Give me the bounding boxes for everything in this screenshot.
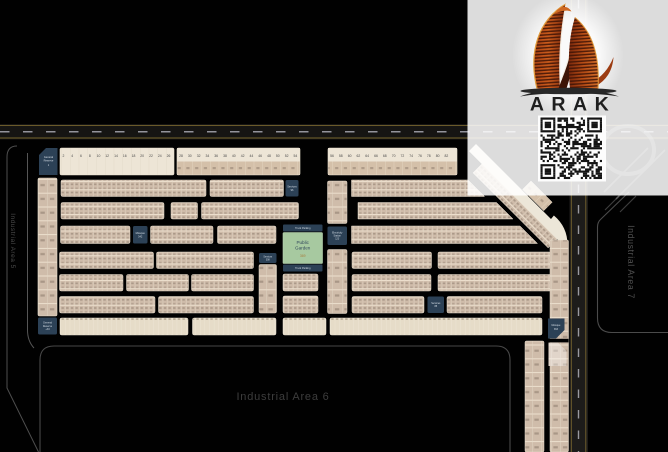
svg-text:123: 123: [335, 238, 340, 241]
svg-text:12: 12: [105, 154, 109, 158]
svg-text:28: 28: [179, 154, 183, 158]
svg-text:60: 60: [348, 154, 352, 158]
svg-text:18: 18: [132, 154, 136, 158]
svg-text:56: 56: [330, 154, 334, 158]
svg-text:8: 8: [89, 154, 91, 158]
svg-text:Industrial Area 5: Industrial Area 5: [9, 213, 16, 268]
svg-text:58: 58: [339, 154, 343, 158]
svg-text:34: 34: [206, 154, 210, 158]
svg-text:80: 80: [436, 154, 440, 158]
svg-text:62: 62: [357, 154, 361, 158]
svg-text:Public: Public: [296, 240, 309, 245]
svg-text:76: 76: [418, 154, 422, 158]
svg-text:342: 342: [138, 234, 143, 238]
svg-text:2: 2: [63, 154, 65, 158]
svg-text:Truck Parking: Truck Parking: [295, 267, 311, 270]
svg-text:24: 24: [158, 154, 162, 158]
svg-text:82: 82: [445, 154, 449, 158]
svg-text:Services: Services: [263, 255, 273, 258]
svg-text:30: 30: [188, 154, 192, 158]
svg-text:363: 363: [554, 328, 559, 331]
svg-text:369: 369: [300, 254, 306, 258]
svg-text:50: 50: [276, 154, 280, 158]
svg-text:46: 46: [258, 154, 262, 158]
svg-text:+33: +33: [45, 328, 50, 331]
svg-text:General: General: [44, 155, 54, 159]
svg-text:Industrial Area 7: Industrial Area 7: [626, 225, 636, 299]
svg-text:Mosque: Mosque: [552, 324, 562, 327]
svg-text:40: 40: [232, 154, 236, 158]
svg-text:16: 16: [123, 154, 127, 158]
svg-text:Garden: Garden: [295, 245, 311, 250]
svg-text:Reserve: Reserve: [44, 159, 54, 163]
svg-text:70: 70: [392, 154, 396, 158]
svg-text:52: 52: [285, 154, 289, 158]
svg-text:72: 72: [401, 154, 405, 158]
svg-text:4: 4: [71, 154, 73, 158]
svg-text:10: 10: [97, 154, 101, 158]
svg-text:26: 26: [167, 154, 171, 158]
svg-text:22: 22: [149, 154, 153, 158]
svg-text:44: 44: [250, 154, 254, 158]
svg-text:54: 54: [294, 154, 298, 158]
svg-text:6: 6: [80, 154, 82, 158]
svg-text:Industrial Area 6: Industrial Area 6: [236, 391, 329, 403]
svg-text:20: 20: [140, 154, 144, 158]
svg-text:36: 36: [214, 154, 218, 158]
svg-text:14: 14: [114, 154, 118, 158]
svg-text:32: 32: [197, 154, 201, 158]
svg-text:74: 74: [409, 154, 413, 158]
svg-text:38: 38: [223, 154, 227, 158]
svg-text:48: 48: [267, 154, 271, 158]
svg-text:42: 42: [241, 154, 245, 158]
svg-text:ARAK: ARAK: [530, 93, 616, 115]
svg-text:64: 64: [365, 154, 369, 158]
svg-text:68: 68: [383, 154, 387, 158]
svg-text:78: 78: [427, 154, 431, 158]
svg-text:66: 66: [374, 154, 378, 158]
svg-text:Truck Parking: Truck Parking: [295, 227, 311, 230]
